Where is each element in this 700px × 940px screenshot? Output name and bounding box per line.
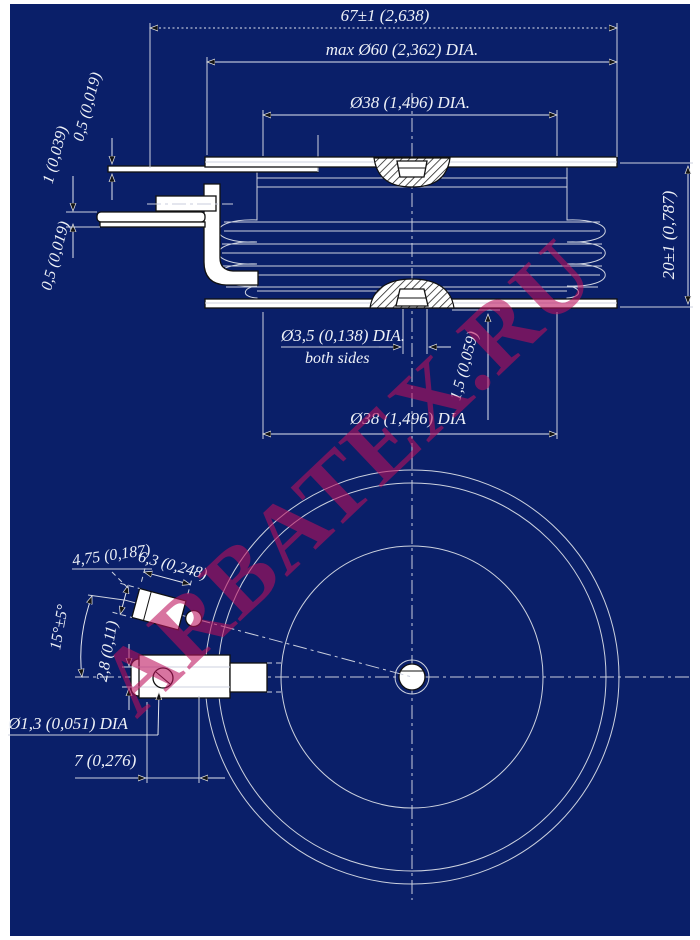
terminal-step bbox=[230, 663, 267, 692]
technical-drawing: 67±1 (2,638) max Ø60 (2,362) DIA. Ø38 (1… bbox=[0, 0, 700, 940]
dim-flange-dia-label: max Ø60 (2,362) DIA. bbox=[326, 40, 479, 59]
top-center-cap bbox=[397, 161, 427, 177]
dim-terminal-hole-label: Ø1,3 (0,051) DIA bbox=[7, 714, 129, 733]
dim-height-label: 20±1 (0,787) bbox=[659, 190, 678, 279]
flat-lead bbox=[97, 212, 205, 222]
thin-lead-under bbox=[100, 222, 205, 227]
dim-hole-spacing-label: 7 (0,276) bbox=[74, 751, 137, 770]
center-hole bbox=[395, 660, 429, 694]
dim-overall-width-label: 67±1 (2,638) bbox=[341, 6, 430, 25]
drawing-page: 67±1 (2,638) max Ø60 (2,362) DIA. Ø38 (1… bbox=[0, 0, 700, 940]
dim-center-hole-label: Ø3,5 (0,138) DIA. bbox=[280, 326, 405, 345]
dim-contact-dia-top-label: Ø38 (1,496) DIA. bbox=[349, 93, 470, 112]
dim-center-hole-note: both sides bbox=[305, 350, 369, 367]
